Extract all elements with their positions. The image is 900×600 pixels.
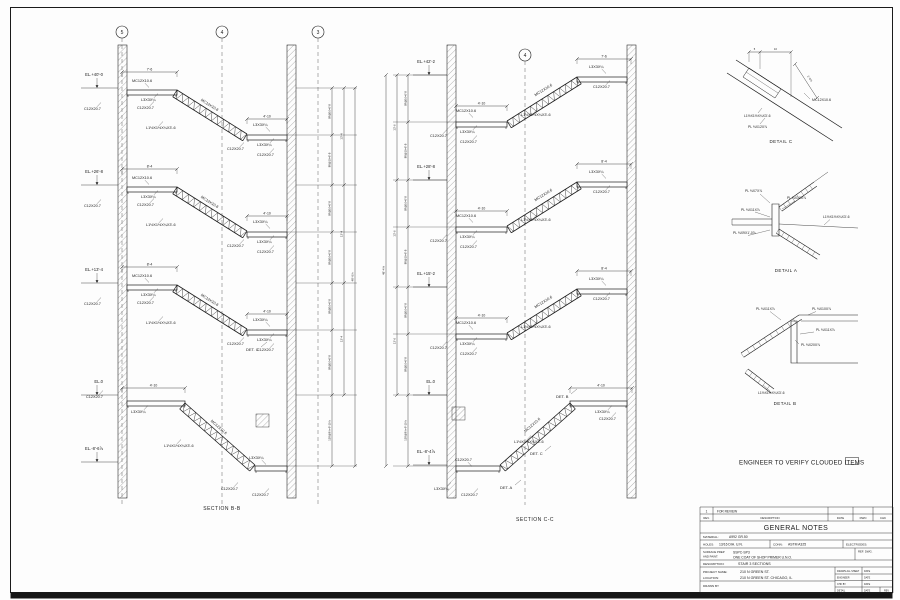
member-callout: C12X20.7	[227, 342, 244, 346]
section-c-c: 48R@10=6'-88R@10=6'-88R@10=6'-88R@10=6'-…	[382, 45, 636, 505]
dim-label: 8R@10=6'-8	[328, 250, 332, 265]
sign-date-1: DATE	[864, 577, 871, 580]
member-callout: PL ⅜X11X⅞	[816, 328, 835, 332]
landing-channel	[247, 232, 287, 237]
line	[262, 460, 266, 464]
line	[754, 376, 757, 380]
line	[741, 353, 744, 357]
member-callout: MC12X10.6	[132, 274, 152, 278]
detail-b: PL ⅜X11X⅞PL ⅜X10X⅞PL ⅜X11X⅞PL ⅜X20X⅞L1½X…	[741, 307, 858, 395]
member-callout: C12X20.7	[252, 493, 269, 497]
member-callout: C12X20.7	[430, 239, 447, 243]
line	[776, 229, 779, 233]
col-date: DATE	[837, 516, 844, 520]
treads-zigzag	[176, 187, 247, 236]
line	[782, 326, 785, 330]
member-callout: PL ⅜X20X⅞	[801, 343, 820, 347]
member-callout: C12X20.7	[257, 250, 274, 254]
title-block: 1 FOR REVIEW REV. DESCRIPTION DATE DWN C…	[700, 507, 893, 593]
electrodes-label: ELECTRODES:	[846, 543, 867, 547]
member-callout: L3X3X¼	[595, 410, 610, 414]
line	[805, 188, 808, 192]
member-callout: C12X20.7	[137, 203, 154, 207]
sheet-edge-bar	[11, 593, 893, 599]
member-callout: L1½X1½X¼X3'-6	[744, 114, 771, 118]
line	[507, 333, 511, 340]
member-callout: PL ⅜X10X⅞	[787, 196, 806, 200]
line	[602, 281, 606, 285]
elevation-label: EL.+40'-0	[85, 72, 104, 77]
dim-label: 5	[754, 47, 756, 51]
location-value: 210 N GREEN ST. CHICAGO, IL	[740, 576, 792, 580]
member-callout: C12X20.7	[84, 204, 101, 208]
member-callout: PL ⅜X7X⅞	[745, 189, 762, 193]
dim-label: 4'-10	[478, 102, 486, 106]
rev-cell-label: REV	[884, 590, 889, 593]
member-callout: L3X3X¼	[249, 456, 264, 460]
detail-titles: DETAIL C DETAIL A DETAIL B	[770, 139, 798, 406]
line	[266, 322, 270, 326]
dim-label: 13'-4	[340, 230, 344, 237]
dim-label: 4'-10	[478, 314, 486, 318]
line	[802, 245, 805, 249]
drawing-canvas: 5438R@10=6'-88R@10=6'-88R@10=6'-88R@10=6…	[0, 0, 900, 600]
dim-label: 8R@10=6'-8	[404, 91, 408, 106]
landing-channel	[127, 90, 177, 95]
elevation-label: EL.-8'-6⅞	[85, 446, 104, 451]
line	[515, 480, 521, 485]
col-dwn: DWN	[860, 516, 867, 520]
member-callout: L3X3X¼	[589, 65, 604, 69]
project-label: PROJECT NAME:	[703, 570, 727, 574]
sign-label-3: DETAIL	[837, 590, 846, 593]
material-label: MATERIAL:	[703, 535, 719, 539]
conn-value: ASTM A325	[788, 543, 806, 547]
member-callout: L3X3X¼	[589, 170, 604, 174]
dim-label: 8R@10=6'-8	[404, 196, 408, 211]
line	[507, 226, 511, 233]
line	[145, 278, 149, 282]
line	[746, 72, 778, 93]
grid-label: 4	[221, 30, 224, 36]
line	[781, 232, 784, 236]
grid-label: 3	[317, 30, 320, 36]
landing-channel	[127, 285, 177, 290]
dim-label: 13'-6	[393, 337, 397, 344]
stringer-top	[185, 403, 255, 465]
member-callout: C12X20.7	[84, 302, 101, 306]
conn-label: CONN:	[773, 543, 783, 547]
dim-label: 4'-10	[263, 212, 271, 216]
grid-label: 5	[121, 30, 124, 36]
member-callout: L3X3X¼	[253, 220, 268, 224]
line	[758, 342, 761, 346]
line	[469, 113, 473, 117]
line	[808, 312, 816, 316]
member-callout: L1½X1½X¼X3'-6	[146, 126, 176, 130]
ref-dwg-label: REF. DWG.	[858, 550, 873, 554]
sign-date-3: DATE	[864, 590, 871, 593]
line	[749, 372, 752, 376]
line	[602, 69, 606, 73]
line	[797, 242, 800, 246]
elevation-arrow	[428, 72, 431, 75]
member-callout: C12X20.7	[593, 190, 610, 194]
dim-label: 8R@10=6'-8	[404, 249, 408, 264]
sign-date-2: DATE	[864, 583, 871, 586]
holes-value: 13/16 DIA. U.N.	[719, 543, 743, 547]
line	[793, 62, 797, 66]
dim-label: 13'-6	[393, 230, 397, 237]
elevation-arrow	[428, 462, 431, 465]
section-b-b: 5438R@10=6'-88R@10=6'-88R@10=6'-88R@10=6…	[81, 26, 357, 505]
dim-label: 13'-6	[393, 124, 397, 131]
line	[770, 312, 781, 321]
line	[602, 174, 606, 178]
line	[814, 172, 828, 182]
landing-channel	[456, 334, 507, 339]
dim-label: 7'-6	[601, 55, 607, 59]
member-callout: L1½X1½X¼X3'-6	[823, 215, 850, 219]
member-callout: PL ⅜X11X⅞	[756, 307, 775, 311]
dim-label: 8'-4	[147, 263, 153, 267]
line	[800, 332, 814, 334]
dim-label: 8R@10=6'-8	[328, 104, 332, 119]
line	[469, 218, 473, 222]
landing-channel	[577, 77, 627, 82]
member-callout: C12X20.7	[137, 301, 154, 305]
line	[243, 134, 247, 141]
member-callout: C12X20.7	[137, 106, 154, 110]
member-callout: L3X3X¼	[257, 338, 272, 342]
member-callout: L3X3X¼	[434, 487, 449, 491]
rev-description: FOR REVIEW	[717, 510, 737, 514]
line	[801, 191, 804, 195]
dim-label: 4'-10	[597, 384, 605, 388]
line	[779, 224, 858, 228]
line	[760, 194, 770, 203]
line	[760, 118, 765, 124]
line	[788, 201, 791, 205]
detail-reference: DET. A	[500, 485, 513, 490]
line	[776, 330, 779, 334]
member-callout: L1½X1½X¼X3'-6	[758, 391, 785, 395]
line	[779, 207, 782, 211]
member-callout: L1½X1½X¼X3'-6	[514, 440, 544, 444]
elevation-label: EL.0	[94, 379, 103, 384]
line	[266, 224, 270, 228]
elevation-arrow	[96, 85, 99, 88]
col-description: DESCRIPTION	[760, 516, 779, 520]
member-callout: L1½X1½X¼X3'-6	[521, 218, 551, 222]
member-callout: C12X20.7	[455, 458, 472, 462]
treads-zigzag	[183, 403, 255, 469]
landing-channel	[127, 187, 177, 192]
member-callout: C12X20.7	[257, 348, 274, 352]
elevation-label: EL.+42'-2	[417, 59, 436, 64]
dim-label: 10	[774, 47, 777, 51]
detail-c-title: DETAIL C	[770, 139, 793, 144]
drawing-sheet: 5438R@10=6'-88R@10=6'-88R@10=6'-88R@10=6…	[0, 0, 900, 600]
dim-label: 1'-0⅞	[806, 74, 813, 83]
dim-label: 4'-10	[478, 207, 486, 211]
treads-zigzag	[176, 285, 247, 334]
member-callout: C12X20.7	[599, 417, 616, 421]
dim-label: 8'-4	[601, 267, 607, 271]
member-callout: C12X20.7	[461, 493, 478, 497]
detail-a-title: DETAIL A	[775, 268, 797, 273]
member-callout: L3X3X¼	[141, 98, 156, 102]
member-callout: PL ⅜X12X⅞	[748, 125, 767, 129]
channel-section	[743, 68, 781, 98]
dim-label: 4'-10	[150, 384, 158, 388]
line	[261, 342, 267, 347]
treads-zigzag	[176, 90, 247, 139]
dim-label: 8R@10=6'-8	[328, 355, 332, 370]
elevation-label: EL.0	[426, 379, 435, 384]
member-callout: L1½X1½X¼X3'-6	[164, 444, 194, 448]
dim-label: 48'-4⅞	[382, 265, 386, 275]
landing-channel	[456, 122, 507, 127]
elevation-arrow	[428, 392, 431, 395]
stringer-callout: MC12X10.6	[534, 188, 553, 202]
landing-channel	[255, 466, 287, 471]
section-titles: SECTION B-B SECTION C-C	[203, 506, 554, 523]
rev-number: 1	[706, 510, 708, 514]
line	[469, 325, 473, 329]
wall-hatched	[447, 45, 456, 498]
dim-label: 8R@10=6'-8	[404, 303, 408, 318]
project-value: 210 N GREEN ST.	[740, 570, 770, 574]
material-value: A992 GR.50	[729, 535, 748, 539]
member-callout: L3X3X¼	[257, 240, 272, 244]
detail-reference: DET. B	[556, 394, 569, 399]
member-callout: C12X20.7	[430, 134, 447, 138]
member-callout: L3X3X¼	[141, 195, 156, 199]
member-callout: MC12X10.6	[456, 321, 476, 325]
line	[792, 239, 795, 243]
line	[753, 345, 756, 349]
landing-channel	[456, 466, 500, 471]
member-callout: C12X20.7	[257, 153, 274, 157]
surface-value-2: ONE COAT OF SHOP PRIMER U.N.O.	[733, 556, 792, 560]
dim-label: 13'-4	[340, 335, 344, 342]
line	[507, 121, 511, 128]
detail-reference: DET. C	[246, 347, 259, 352]
dim-label: 8R@10=6'-8	[404, 357, 408, 372]
elevation-label: EL.+26'-8	[85, 169, 104, 174]
elevation-label: EL.+13'-4	[85, 267, 104, 272]
detail-c: 5101'-0⅞MC12X10.6L1½X1½X¼X3'-6PL ⅜X12X⅞	[727, 47, 842, 141]
detail-b-title: DETAIL B	[774, 401, 797, 406]
line	[812, 252, 815, 256]
detail-reference: DET. C	[530, 451, 543, 456]
col-rev: REV.	[703, 516, 709, 520]
dim-label: 12R@9⅞=9'-10⅞	[404, 419, 408, 440]
line	[787, 323, 790, 327]
dim-label: 48'-6⅞	[351, 272, 355, 282]
dim-label: 4'-10	[263, 310, 271, 314]
line	[795, 64, 817, 98]
bent-plate	[791, 321, 797, 363]
verify-note: ENGINEER TO VERIFY CLOUDED ITEMS	[739, 458, 864, 467]
member-callout: MC12X10.6	[456, 214, 476, 218]
detail-a: PL ⅜X7X⅞PL ⅜X10X⅞PL ⅜X11X⅞L1½X1½X¼X3'-6P…	[732, 172, 858, 259]
member-callout: MC12X10.6	[456, 109, 476, 113]
line	[824, 220, 830, 226]
member-callout: C12X20.7	[460, 352, 477, 356]
member-callout: L3X3X¼	[131, 410, 146, 414]
member-callout: L3X3X¼	[460, 130, 475, 134]
member-callout: C12X20.7	[221, 487, 238, 491]
treads-zigzag	[507, 289, 578, 338]
surface-label-1: SURFACE PREP	[703, 550, 725, 554]
treads-zigzag	[507, 182, 578, 231]
location-label: LOCATION:	[703, 576, 719, 580]
line	[500, 465, 505, 471]
member-callout: L3X3X¼	[253, 318, 268, 322]
grid-label: 4	[524, 53, 527, 59]
member-callout: MC12X10.6	[132, 79, 152, 83]
member-callout: C12X20.7	[227, 147, 244, 151]
member-callout: L1½X1½X¼X3'-6	[521, 325, 551, 329]
member-callout: C12X20.7	[593, 85, 610, 89]
member-callout: C12X20.7	[84, 107, 101, 111]
line	[571, 389, 577, 394]
member-callout: L3X3X¼	[460, 342, 475, 346]
member-callout: L3X3X¼	[253, 123, 268, 127]
section-b-title: SECTION B-B	[203, 506, 241, 512]
bent-plate	[772, 204, 779, 236]
line	[758, 108, 762, 113]
line	[243, 231, 247, 238]
sign-date-0: DATE	[864, 570, 871, 573]
sign-label-2: CHK BY	[837, 583, 846, 586]
member-callout: C12X20.7	[460, 140, 477, 144]
member-callout: L3X3X¼	[460, 235, 475, 239]
line	[266, 127, 270, 131]
elevation-label: EL.+15'-2	[417, 271, 436, 276]
line	[810, 185, 813, 189]
line	[145, 180, 149, 184]
member-callout: L3X3X¼	[141, 293, 156, 297]
member-callout: MC12X10.6	[812, 98, 831, 102]
generated-linework: 5438R@10=6'-88R@10=6'-88R@10=6'-88R@10=6…	[81, 26, 858, 505]
wall-hatched	[287, 45, 296, 498]
member-callout: L1½X1½X¼X3'-6	[146, 321, 176, 325]
line	[804, 93, 810, 99]
dim-label: 12R@9⅞=9'-10⅞	[328, 419, 332, 440]
dim-label: 4'-10	[263, 115, 271, 119]
dim-label: 8R@10=6'-8	[404, 143, 408, 158]
sign-label-0: DRAWN ALL SHEET	[837, 570, 860, 573]
sign-label-1: ENGINEER	[837, 577, 850, 580]
line	[782, 201, 795, 209]
section-c-title: SECTION C-C	[516, 517, 554, 523]
clouded-item-box	[452, 407, 465, 420]
dim-label: 8'-4	[147, 165, 153, 169]
title-block-title: GENERAL NOTES	[764, 525, 828, 532]
dim-label: 8'-4	[601, 160, 607, 164]
elevation-label: EL.+28'-8	[417, 164, 436, 169]
treads-zigzag	[500, 403, 572, 469]
member-callout: L3X3X¼	[589, 277, 604, 281]
line	[727, 73, 833, 141]
landing-channel	[127, 401, 185, 406]
elevation-arrow	[96, 459, 99, 462]
line	[250, 465, 255, 471]
elevation-arrow	[428, 177, 431, 180]
elevation-arrow	[96, 280, 99, 283]
landing-channel	[247, 330, 287, 335]
member-callout: C12X20.7	[86, 395, 103, 399]
landing-channel	[570, 401, 627, 406]
member-callout: L1½X1½X¼X3'-6	[146, 223, 176, 227]
landing-channel	[247, 135, 287, 140]
col-chk: CHK	[880, 516, 886, 520]
stringer-callout: MC12X10.6	[534, 295, 553, 309]
surface-value-1: SSPC-SP3	[733, 551, 750, 555]
line	[145, 83, 149, 87]
member-callout: C12X20.7	[430, 346, 447, 350]
line	[758, 379, 761, 383]
member-callout: C12X20.7	[593, 297, 610, 301]
landing-channel	[577, 182, 627, 187]
wall-hatched	[627, 45, 636, 498]
holes-label: HOLES:	[703, 543, 714, 547]
landing-channel	[577, 289, 627, 294]
dim-label: 8R@10=6'-8	[328, 152, 332, 167]
line	[764, 338, 767, 342]
line	[545, 446, 551, 451]
line	[747, 349, 750, 353]
dim-label: 8R@10=6'-8	[328, 299, 332, 314]
surface-label-2: AND PAINT:	[703, 555, 718, 559]
elevation-arrow	[96, 182, 99, 185]
line	[776, 233, 817, 259]
member-callout: L3X3X¼	[257, 143, 272, 147]
line	[755, 212, 770, 217]
member-callout: C12X20.7	[460, 245, 477, 249]
member-callout: PL ⅜X10X⅞	[812, 307, 831, 311]
wall-hatched	[118, 45, 127, 498]
clouded-item-box	[256, 414, 269, 427]
member-callout: C12X20.7	[227, 244, 244, 248]
description-value: STAIR 3 SECTIONS	[738, 562, 771, 566]
line	[787, 236, 790, 240]
dim-label: 7'-6	[147, 68, 153, 72]
stringer-callout: MC12X10.6	[534, 83, 553, 97]
description-label: DESCRIPTION:	[703, 562, 725, 566]
line	[745, 369, 748, 373]
dim-label: 8R@10=6'-8	[328, 201, 332, 216]
stringer-bottom	[180, 409, 250, 471]
drawn-by-label: DRAWN BY	[703, 584, 719, 588]
line	[767, 386, 770, 390]
member-callout: PL ⅜X11X⅞	[741, 208, 760, 212]
landing-channel	[456, 227, 507, 232]
treads-zigzag	[507, 77, 578, 126]
line	[807, 249, 810, 253]
line	[770, 334, 773, 338]
member-callout: MC12X10.6	[132, 176, 152, 180]
dim-label: 13'-4	[340, 133, 344, 140]
member-callout: L1½X1½X¼X3'-6	[521, 113, 551, 117]
elevation-label: EL.-8'-4⅞	[417, 449, 436, 454]
elevation-arrow	[428, 284, 431, 287]
line	[243, 329, 247, 336]
